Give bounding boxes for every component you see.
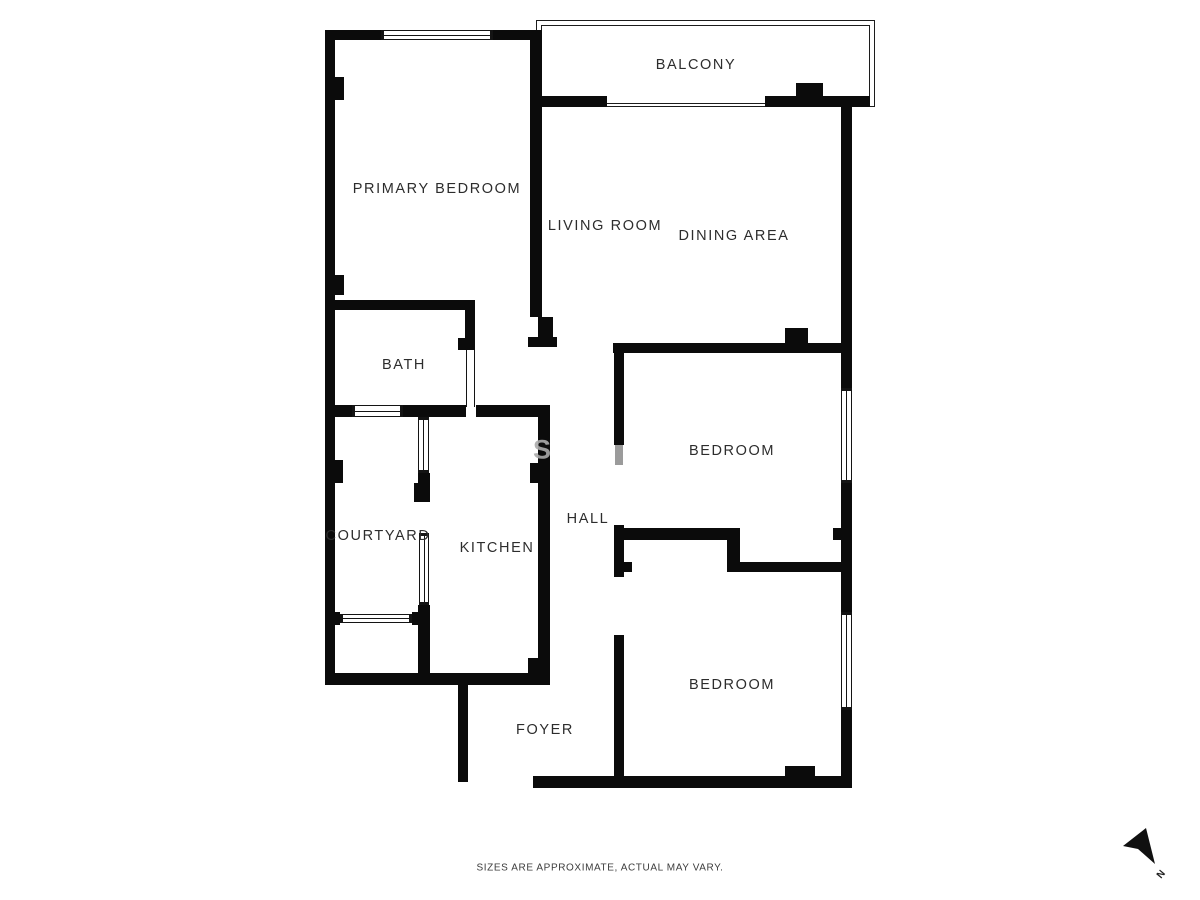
wall [542,96,607,107]
wall-pillar [335,77,344,100]
wall-pillar [796,83,823,96]
door-opening-jambs [466,350,475,407]
wall [614,635,624,780]
wall-cap [332,612,340,625]
room-label-courtyard: COURTYARD [326,528,431,544]
room-label-bath: BATH [382,357,426,373]
wall-pier [528,337,557,347]
wall [325,673,550,685]
wall [727,540,740,562]
wall [458,685,468,782]
window [381,30,493,40]
room-label-foyer: FOYER [516,722,574,738]
wall [765,96,870,107]
wall-pier [530,463,538,483]
window [418,417,429,473]
window [352,405,403,417]
compass-north-label: N [1155,868,1168,881]
floor-plan-canvas: BALCONY PRIMARY BEDROOM LIVING ROOM DINI… [0,0,1200,900]
wall [325,405,352,417]
wall [841,483,852,612]
room-label-bedroom-2: BEDROOM [689,677,775,693]
wall [325,30,381,40]
wall [325,30,335,685]
wall [533,776,852,788]
room-label-primary-bedroom: PRIMARY BEDROOM [353,181,522,197]
door-leaf [615,445,623,465]
window [340,614,412,623]
wall [465,300,475,340]
wall-pier [833,528,841,540]
room-label-kitchen: KITCHEN [460,540,535,556]
wall-pier [624,562,632,572]
room-label-dining-area: DINING AREA [678,228,789,244]
north-arrow-icon: N [1108,818,1172,886]
wall [476,405,550,417]
wall-corner-block [528,658,550,673]
wall-pillar [785,328,808,343]
wall-pier [458,338,475,350]
wall [403,405,466,417]
room-label-hall: HALL [567,511,610,527]
wall [727,562,845,572]
wall [530,30,542,317]
wall-cap [412,612,420,625]
room-label-balcony: BALCONY [656,57,737,73]
wall [614,343,624,445]
wall-pier [414,483,423,502]
room-label-bedroom-1: BEDROOM [689,443,775,459]
wall-pier [538,317,553,337]
wall-pillar [335,460,343,483]
wall-pillar [785,766,815,776]
wall [613,343,848,353]
wall-pillar [335,275,344,295]
wall [334,300,475,310]
window [841,612,852,710]
disclaimer-text: SIZES ARE APPROXIMATE, ACTUAL MAY VARY. [477,863,724,874]
watermark: S [533,435,551,466]
wall [614,528,740,540]
room-label-living-room: LIVING ROOM [548,218,662,234]
window [841,388,852,483]
